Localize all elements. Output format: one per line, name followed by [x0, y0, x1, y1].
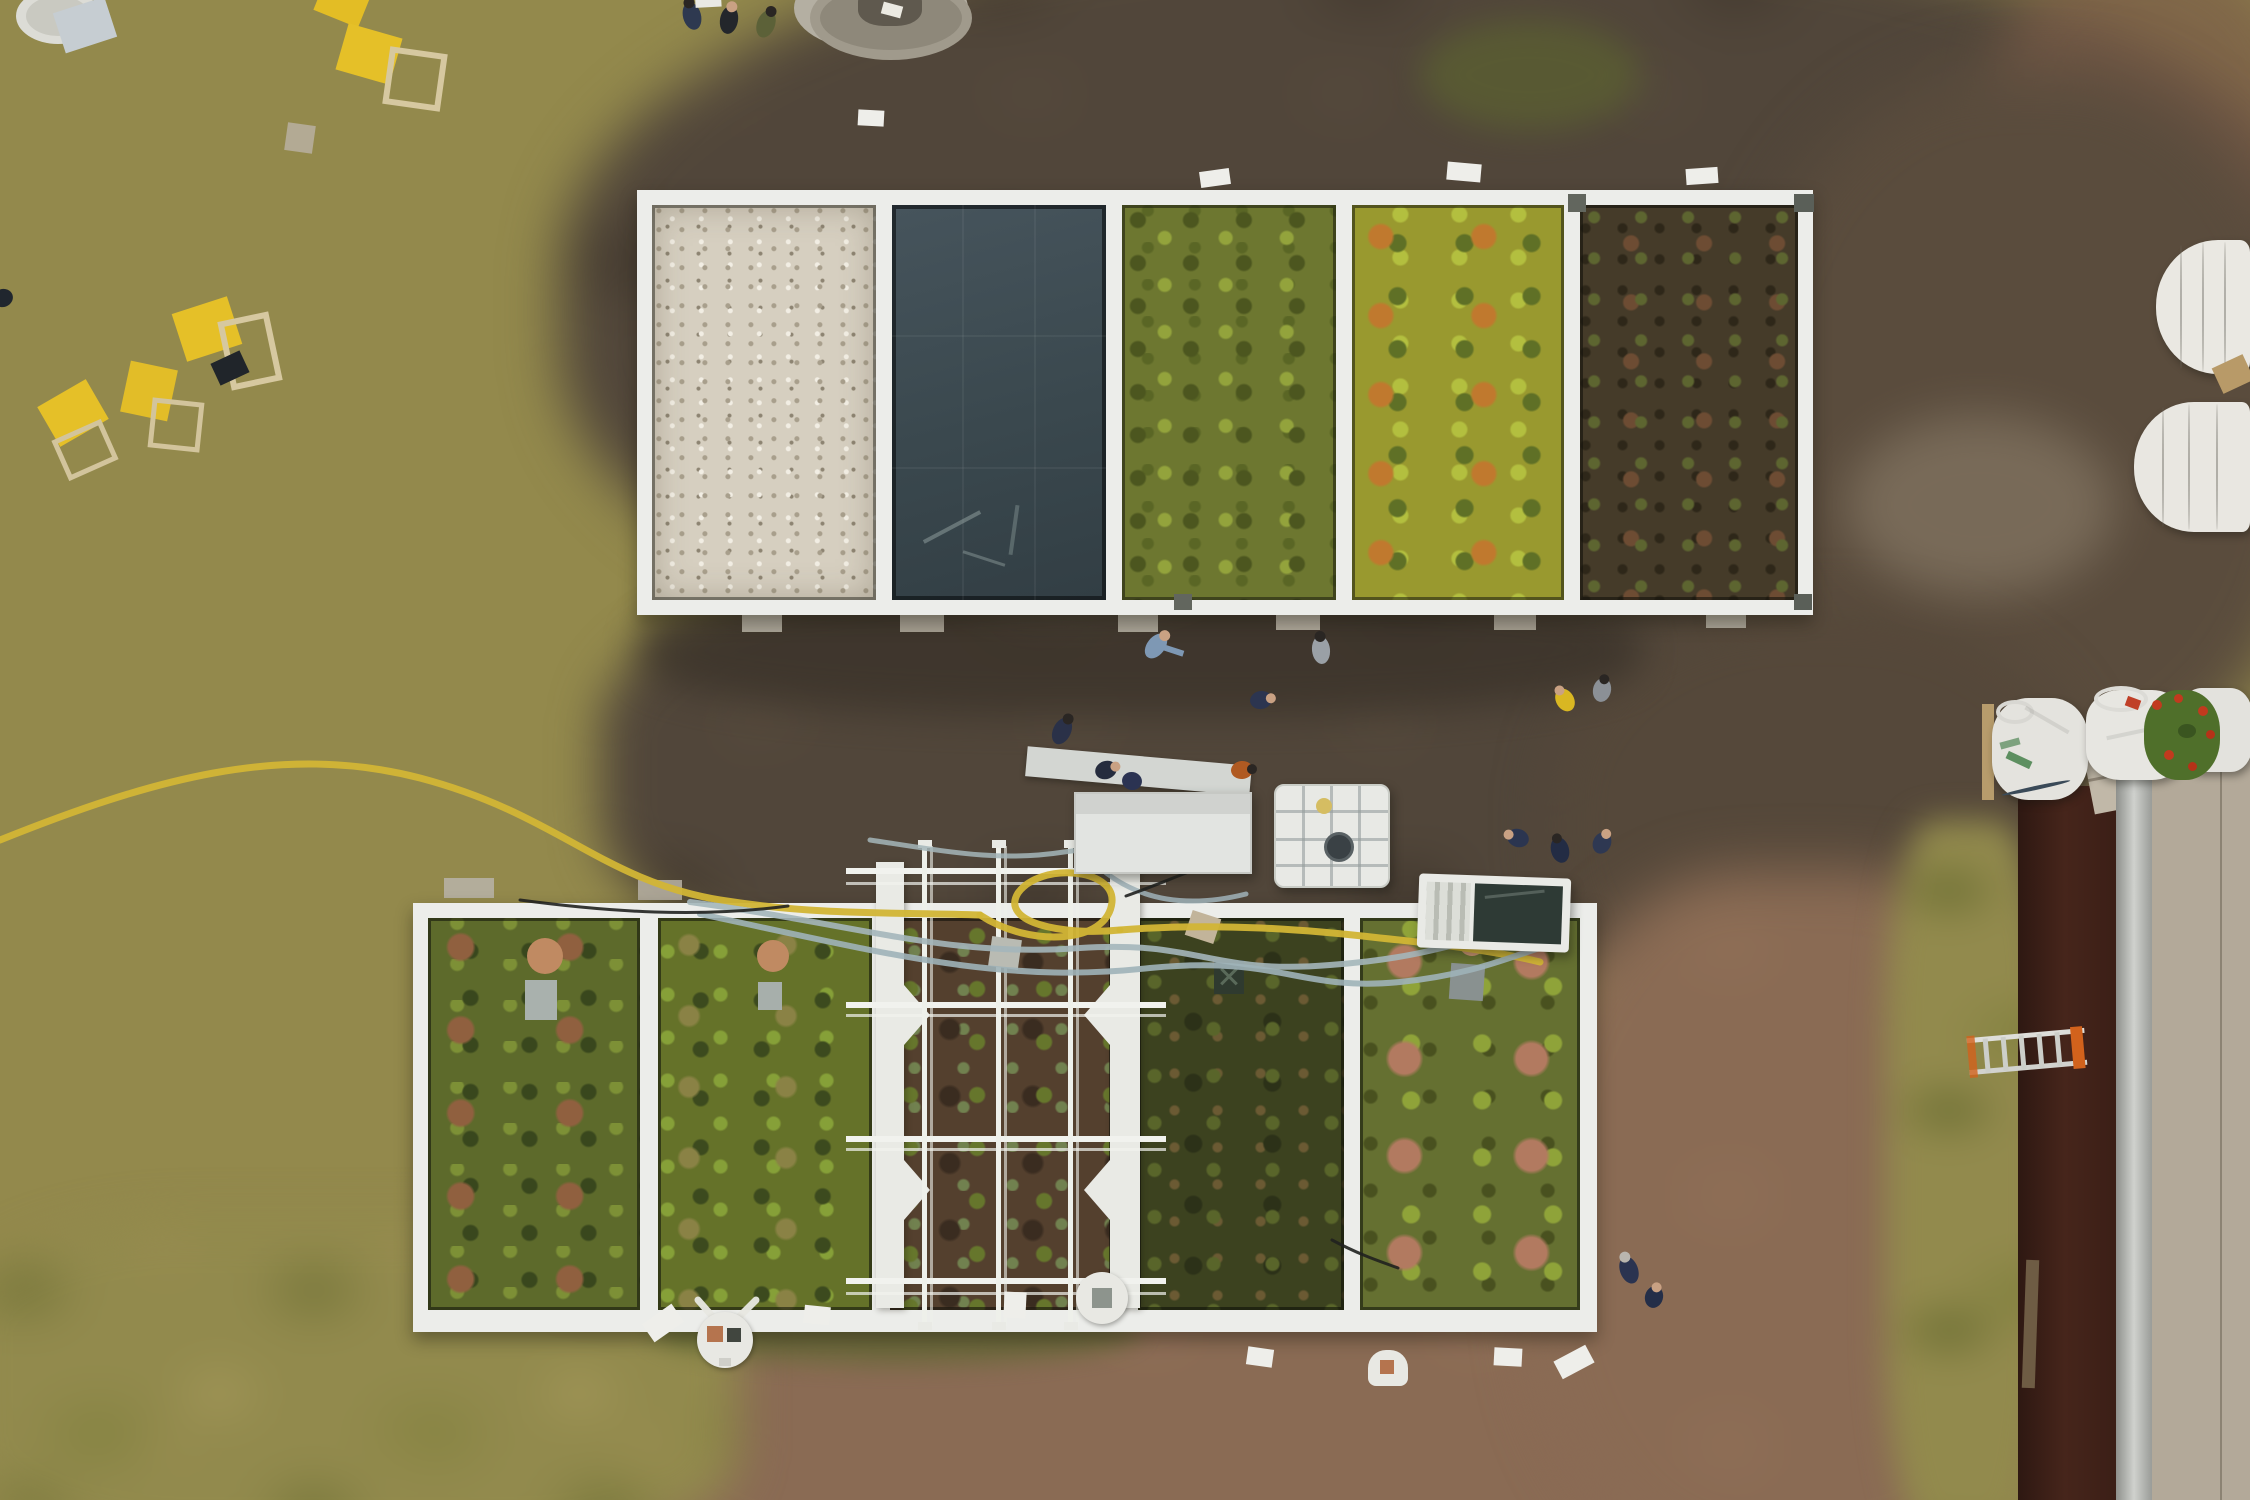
bag-trim-line — [2001, 779, 2070, 797]
lattice-vrail — [922, 846, 927, 1326]
person — [718, 5, 741, 36]
membrane-scratch — [923, 510, 981, 544]
tent-seam — [2180, 245, 2182, 369]
plot-dark-membrane — [892, 205, 1106, 600]
membrane-grid-line — [892, 335, 1106, 337]
tent-seam — [2202, 242, 2204, 372]
plant-red-bloom — [2152, 700, 2162, 710]
frame-cap — [1794, 594, 1812, 610]
lattice-vrail — [930, 846, 933, 1326]
pale-patch-near-tents — [1845, 415, 2115, 595]
membrane-scratch — [1009, 505, 1020, 555]
concrete-pad — [900, 612, 944, 632]
plant-red-bloom — [2198, 706, 2208, 716]
building-gutter — [2116, 770, 2152, 1500]
ibc-water-tank — [1274, 784, 1390, 888]
sensor-disc — [1076, 1272, 1128, 1324]
plant-red-bloom — [2164, 750, 2174, 760]
lattice-foot — [918, 1322, 932, 1330]
lattice-column-left — [876, 862, 904, 1308]
tank-cage-line — [1302, 786, 1305, 886]
plot-leafy-red — [428, 918, 640, 1310]
plant-red-bloom — [2174, 694, 2183, 703]
label-tag — [1246, 1346, 1274, 1367]
label-tag — [1446, 162, 1481, 183]
ladder-rung — [2054, 1032, 2062, 1066]
label-tag — [1685, 167, 1718, 185]
plant-dark-leaf — [2178, 724, 2196, 738]
bag-strap-green — [2006, 751, 2033, 769]
membrane-scratch — [963, 550, 1006, 566]
sensor-disc — [1368, 1350, 1408, 1386]
frame-cap — [1794, 194, 1814, 212]
ladder-rung — [1983, 1038, 1991, 1072]
lattice-plate — [988, 936, 1022, 970]
aerial-photo-canvas — [0, 0, 2250, 1500]
tank-cage-line — [1276, 864, 1388, 867]
whiteboard — [695, 0, 722, 8]
tent-seam — [2188, 404, 2190, 530]
disc-square-terracotta — [1380, 1360, 1394, 1374]
rack-glass — [1473, 883, 1563, 944]
concrete-pad — [444, 878, 494, 898]
weed-patch-top-center — [1420, 20, 1640, 130]
label-tag — [1003, 1291, 1026, 1318]
person-head — [682, 0, 695, 10]
bag-strap-green — [1999, 738, 2020, 750]
lattice-vrail — [1068, 846, 1073, 1326]
ladder — [1966, 1021, 2088, 1083]
tank-cage-line — [1358, 786, 1361, 886]
rack-glass-reflection — [1485, 890, 1545, 899]
plot-sedum-green — [1122, 205, 1336, 600]
person-head — [764, 4, 778, 18]
membrane-grid-line — [1034, 205, 1036, 600]
tent-seam — [2224, 242, 2226, 372]
equipment-table — [1074, 792, 1252, 874]
lattice-column-right — [1110, 862, 1140, 1308]
tent-seam — [2162, 407, 2164, 527]
disc-square-gray — [1092, 1288, 1112, 1308]
disc-notch — [719, 1358, 731, 1366]
glass-panel-rack — [1417, 873, 1571, 952]
sensor-square — [1449, 963, 1485, 1001]
deck-chair-frame — [382, 46, 448, 112]
lattice-foot — [992, 1322, 1006, 1330]
deck-chair-canvas — [313, 0, 370, 28]
tank-cap-dark — [1324, 832, 1354, 862]
plot-dark-substrate — [1580, 205, 1798, 600]
terracotta-disc — [527, 938, 563, 974]
sensor-disc — [697, 1312, 753, 1368]
top-platform — [637, 190, 1813, 615]
membrane-grid-line — [962, 205, 964, 600]
tank-cap-yellow — [1316, 798, 1332, 814]
tunnel-tent — [2134, 402, 2250, 532]
bag-plants-overflow — [2144, 690, 2220, 780]
plant-red-bloom — [2188, 762, 2197, 771]
person — [680, 0, 705, 32]
person-partial-left-edge — [0, 286, 15, 310]
sensor-square — [758, 982, 782, 1010]
building-roof — [2148, 758, 2250, 1500]
ladder-rung — [2036, 1034, 2044, 1068]
sensor-square — [525, 980, 557, 1020]
concrete-pad — [1118, 612, 1158, 632]
lattice-foot — [992, 840, 1006, 848]
lattice-vrail — [996, 846, 1001, 1326]
tent-seam — [2216, 404, 2218, 530]
plant-red-bloom — [2206, 730, 2215, 739]
lattice-foot — [1064, 1322, 1078, 1330]
roof-vertical-seam — [2220, 758, 2222, 1500]
deck-chair-frame — [148, 397, 205, 452]
rack-slats — [1425, 882, 1471, 942]
label-tag — [803, 1305, 831, 1326]
person-head — [725, 0, 738, 13]
disc-square-dark — [727, 1328, 741, 1342]
plot-sedum-yellow — [1352, 205, 1564, 600]
plot-leafy-green — [658, 918, 872, 1310]
building-wall-brick — [2018, 786, 2122, 1500]
ladder-rung — [2019, 1035, 2027, 1069]
frame-cap — [1568, 194, 1586, 212]
disc-square-terracotta — [707, 1326, 723, 1342]
concrete-pad — [638, 880, 682, 900]
lattice-gusset — [1084, 1160, 1110, 1220]
plot-gravel — [652, 205, 876, 600]
big-bag — [1992, 698, 2088, 800]
junction-box-x — [1214, 960, 1244, 994]
square-paver — [284, 122, 316, 154]
bag-fold — [2024, 706, 2069, 734]
label-tag — [1494, 1347, 1523, 1366]
membrane-grid-line — [892, 467, 1106, 469]
terracotta-disc — [757, 940, 789, 972]
lattice-vrail — [1076, 846, 1079, 1326]
frame-cap — [1174, 594, 1192, 610]
bag-trim-navy — [1999, 769, 2070, 797]
ladder-rung — [2001, 1037, 2009, 1071]
equipment-table-shade — [1076, 794, 1250, 814]
tank-cage-line — [1276, 810, 1388, 813]
lattice-foot — [918, 840, 932, 848]
person-head — [1314, 630, 1326, 642]
bag-handle-loop — [2094, 686, 2148, 712]
lattice-vrail — [1004, 846, 1007, 1326]
label-tag — [858, 109, 885, 126]
